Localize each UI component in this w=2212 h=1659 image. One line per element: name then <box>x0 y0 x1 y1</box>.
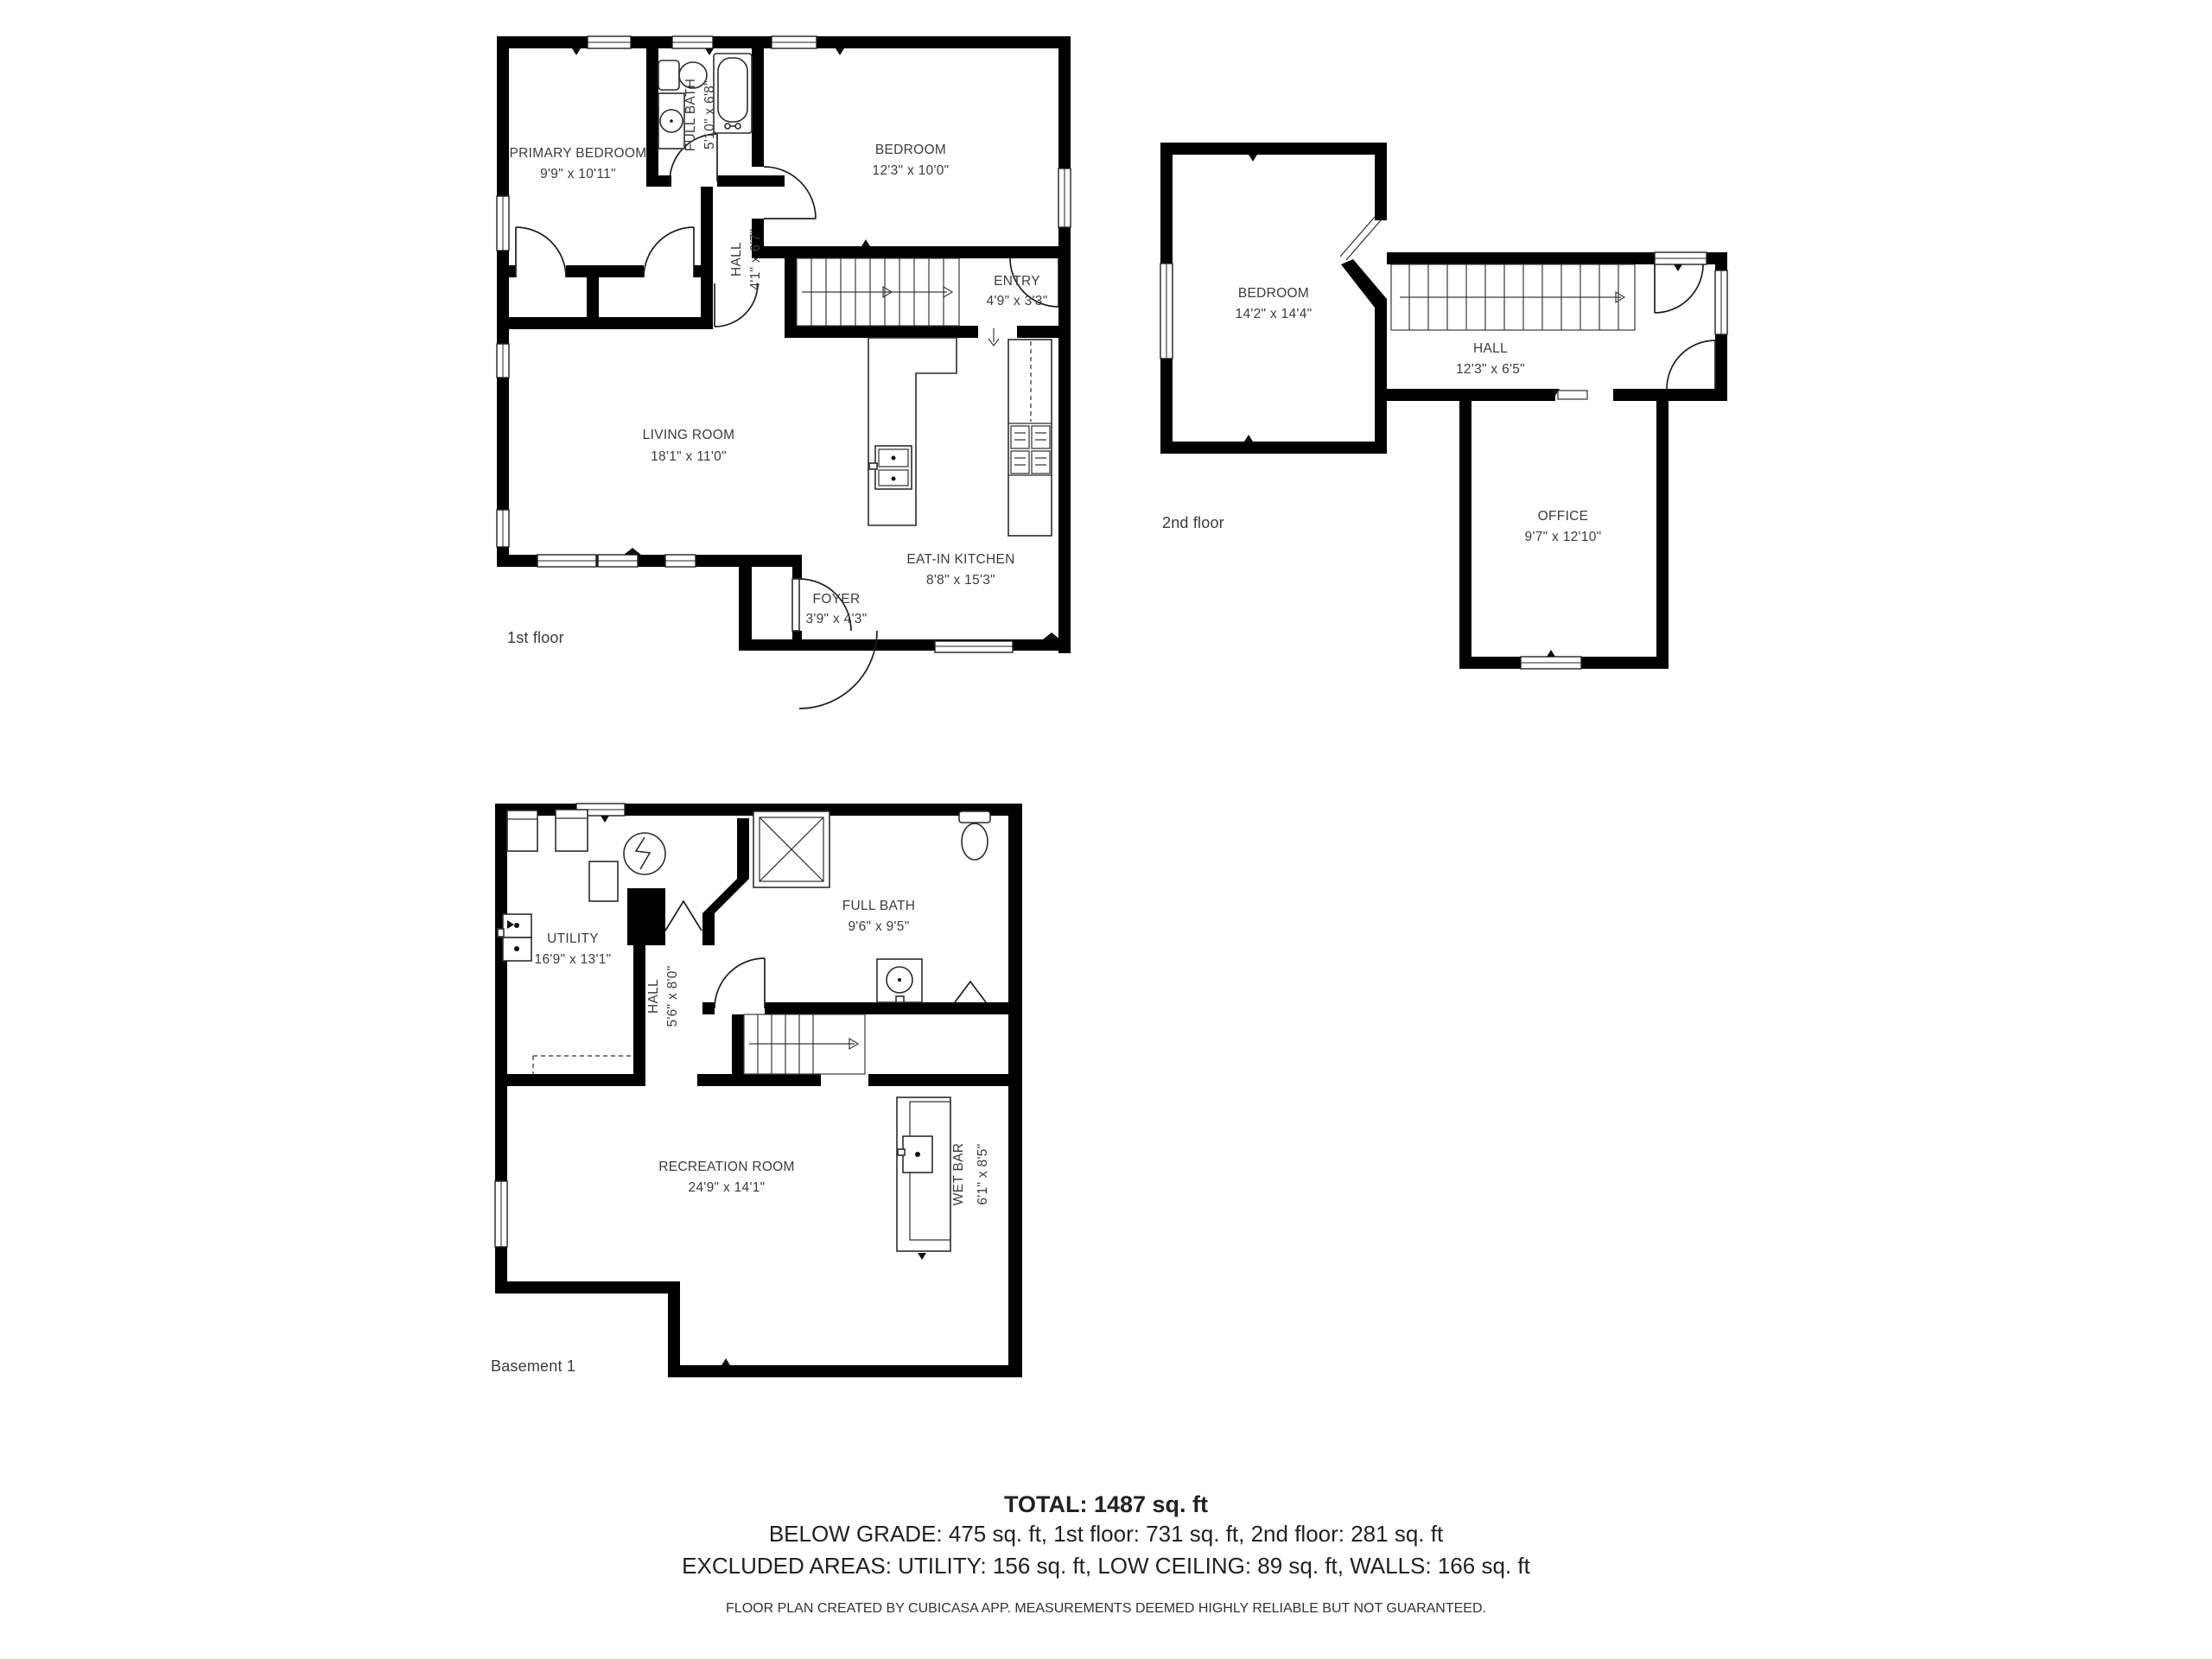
floor-plan-2nd-floor-drawing: BEDROOM 14'2" x 14'4" HALL 12'3" x 6'5" … <box>1158 138 1745 678</box>
laundry-sink-icon <box>498 914 531 961</box>
low-ceiling-dashed-basement <box>533 1056 633 1074</box>
total-area-text: TOTAL: 1487 sq. ft <box>0 1491 2212 1518</box>
room-label: UTILITY <box>547 931 599 946</box>
wall-markers-1st-floor <box>572 48 1060 639</box>
room-dims: 5'6" x 8'0" <box>665 965 680 1027</box>
room-label: FULL BATH <box>683 79 698 152</box>
room-label: EAT-IN KITCHEN <box>906 552 1014 567</box>
room-label: WET BAR <box>951 1143 966 1205</box>
floor-plan-2nd-floor: BEDROOM 14'2" x 14'4" HALL 12'3" x 6'5" … <box>1158 138 1745 678</box>
floor-plan-basement-drawing: UTILITY 16'9" x 13'1" HALL 5'6" x 8'0" F… <box>488 799 1028 1387</box>
area-breakdown-text: BELOW GRADE: 475 sq. ft, 1st floor: 731 … <box>0 1521 2212 1548</box>
wet-bar-counter-icon <box>897 1097 950 1251</box>
room-label: BEDROOM <box>875 143 946 157</box>
room-label: FULL BATH <box>842 899 916 913</box>
room-label: OFFICE <box>1538 509 1589 524</box>
excluded-areas-text: EXCLUDED AREAS: UTILITY: 156 sq. ft, LOW… <box>0 1553 2212 1580</box>
floor-plan-1st-floor-drawing: PRIMARY BEDROOM 9'9" x 10'11" FULL BATH … <box>494 33 1090 724</box>
front-door-leaf <box>792 579 799 631</box>
room-dims: 9'7" x 12'10" <box>1525 530 1602 544</box>
room-label: HALL <box>729 242 744 276</box>
utility-door-swing <box>665 901 702 931</box>
room-dims: 6'1" x 8'5" <box>976 1143 990 1205</box>
shower-icon <box>753 811 829 887</box>
room-label: FOYER <box>813 592 861 607</box>
bathtub-icon <box>714 54 752 133</box>
room-label: HALL <box>646 979 661 1014</box>
disclaimer-text: FLOOR PLAN CREATED BY CUBICASA APP. MEAS… <box>0 1601 2212 1617</box>
bathroom-sink-icon <box>658 93 684 149</box>
stairs-basement <box>744 1014 865 1074</box>
room-label: BEDROOM <box>1238 286 1309 301</box>
room-dims: 14'2" x 14'4" <box>1236 307 1313 321</box>
walls-2nd-floor <box>1160 143 1727 669</box>
room-label: ENTRY <box>994 274 1040 289</box>
room-dims: 4'1" x 6'7" <box>748 228 763 289</box>
walls-basement <box>495 804 1022 1377</box>
room-label: HALL <box>1473 341 1508 356</box>
room-dims: 8'8" x 15'3" <box>926 573 995 588</box>
floor-plan-1st-floor: PRIMARY BEDROOM 9'9" x 10'11" FULL BATH … <box>494 33 1090 724</box>
office-door-threshold <box>1558 391 1587 399</box>
stairs-2nd-floor <box>1391 264 1635 330</box>
stairs-1st-floor <box>797 258 959 326</box>
room-dims: 18'1" x 11'0" <box>651 449 727 464</box>
room-dims: 16'9" x 13'1" <box>535 952 612 967</box>
room-dims: 12'3" x 6'5" <box>1456 362 1525 377</box>
room-label: RECREATION ROOM <box>658 1160 795 1174</box>
room-dims: 9'6" x 9'5" <box>848 919 909 934</box>
room-dims: 12'3" x 10'0" <box>873 163 950 178</box>
floor-plan-page: PRIMARY BEDROOM 9'9" x 10'11" FULL BATH … <box>0 0 2212 1659</box>
floor-plan-basement: UTILITY 16'9" x 13'1" HALL 5'6" x 8'0" F… <box>488 799 1028 1387</box>
floor-label-1st: 1st floor <box>507 629 564 646</box>
furnace-icon <box>589 861 618 901</box>
room-dims: 24'9" x 14'1" <box>689 1180 766 1195</box>
room-dims: 5'10" x 6'8" <box>702 80 717 149</box>
floor-label-2nd: 2nd floor <box>1162 514 1224 531</box>
kitchen-sink-icon <box>869 446 912 489</box>
room-dims: 9'9" x 10'11" <box>540 167 616 181</box>
toilet-icon <box>658 60 707 90</box>
toilet-icon-basement <box>959 811 990 860</box>
bath-door-swing <box>955 982 986 1002</box>
room-label: PRIMARY BEDROOM <box>510 146 647 161</box>
dryer-icon <box>556 810 588 851</box>
floor-label-basement: Basement 1 <box>491 1357 575 1375</box>
kitchen-counter-icon <box>868 338 957 525</box>
room-label: LIVING ROOM <box>643 428 735 442</box>
doors-2nd-floor <box>1655 264 1715 389</box>
basement-bath-sink-icon <box>877 959 922 1002</box>
room-dims: 4'9" x 3'3" <box>986 294 1047 308</box>
water-heater-icon <box>624 833 665 874</box>
room-dims: 3'9" x 4'3" <box>805 612 867 626</box>
washer-icon <box>507 810 537 851</box>
stove-fridge-icon <box>1008 340 1052 536</box>
doors-1st-floor <box>516 134 1058 709</box>
